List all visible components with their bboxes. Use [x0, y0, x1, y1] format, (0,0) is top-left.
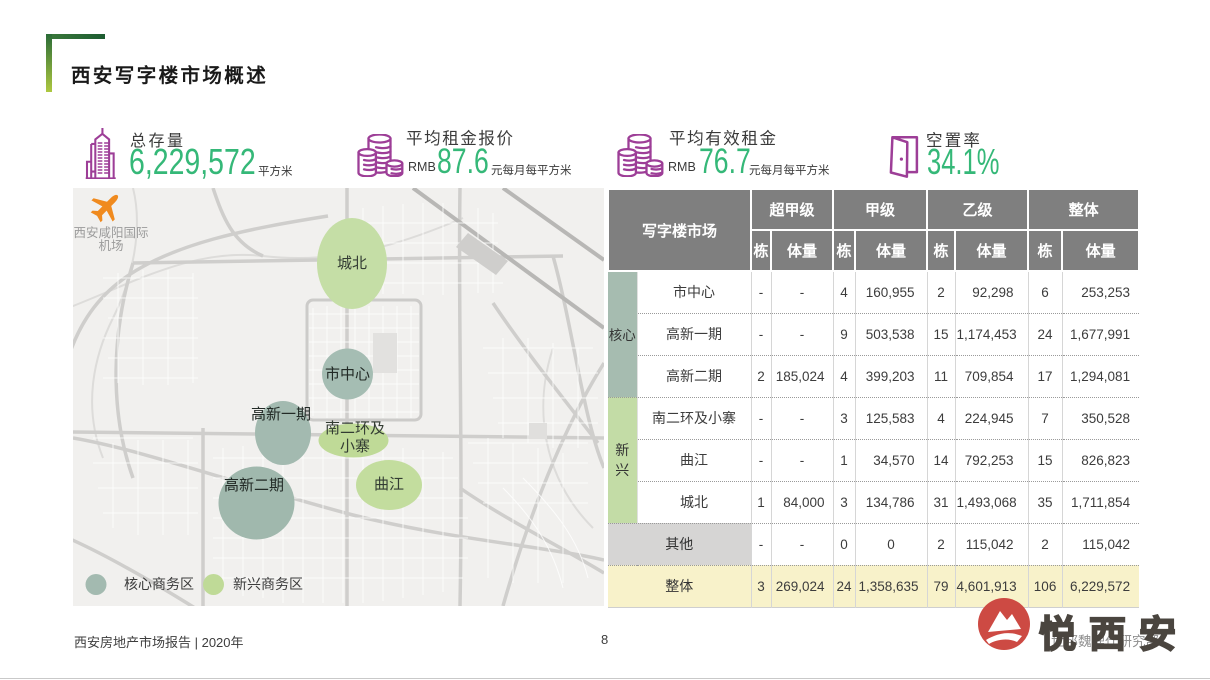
svg-text:高新二期: 高新二期	[224, 477, 284, 494]
svg-text:城北: 城北	[337, 255, 367, 272]
svg-text:南二环及: 南二环及	[325, 420, 385, 437]
svg-text:机场: 机场	[98, 239, 123, 253]
svg-text:曲江: 曲江	[374, 476, 404, 493]
svg-text:西安咸阳国际: 西安咸阳国际	[73, 225, 148, 240]
svg-text:小寨: 小寨	[340, 437, 370, 455]
svg-text:市中心: 市中心	[325, 366, 370, 383]
svg-text:高新一期: 高新一期	[251, 406, 311, 423]
svg-text:核心商务区: 核心商务区	[124, 576, 194, 592]
svg-text:新兴商务区: 新兴商务区	[233, 576, 303, 592]
